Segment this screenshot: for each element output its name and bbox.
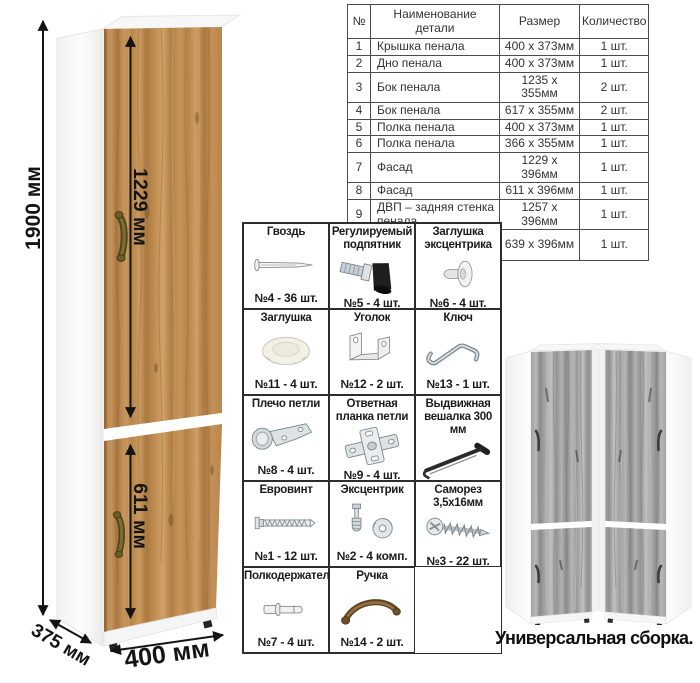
hardware-item-shelf-pin: Полкодержатель №7 - 4 шт.	[243, 567, 329, 653]
table-row: 7 Фасад 1229 х 396мм 1 шт.	[348, 153, 649, 183]
table-row: 4 Бок пенала 617 х 355мм 2 шт.	[348, 103, 649, 120]
hardware-item-cam-lock: Эксцентрик №2 - 4 комп.	[329, 481, 415, 567]
hardware-item-confirmat: Евровинт №1 - 12 шт.	[243, 481, 329, 567]
hardware-item-qty: №11 - 4 шт.	[255, 377, 318, 391]
table-row: 2 Дно пенала 400 х 373мм 1 шт.	[348, 56, 649, 73]
part-size: 611 х 396мм	[500, 183, 580, 200]
hardware-item-qty: №2 - 4 комп.	[337, 549, 408, 563]
hardware-item-cam-cover: Заглушка эксцентрика №6 - 4 шт.	[415, 223, 501, 309]
adjustable-foot-icon	[330, 252, 414, 296]
hardware-grid: Гвоздь №4 - 36 шт. Регулируемый подпятни…	[242, 222, 502, 654]
hardware-item-qty: №4 - 36 шт.	[254, 291, 317, 305]
hardware-item-name: Полкодержатель	[244, 570, 328, 583]
part-name: Полка пенала	[371, 119, 500, 136]
lower-door-dimension-label: 611 мм	[129, 483, 151, 549]
handle-icon	[330, 583, 414, 635]
hardware-item-corner-bracket: Уголок №12 - 2 шт.	[329, 309, 415, 395]
hardware-item-name: Уголок	[330, 312, 414, 325]
col-header-number: №	[348, 5, 371, 39]
part-qty: 1 шт.	[580, 230, 649, 260]
part-name: Дно пенала	[371, 56, 500, 73]
part-size: 400 х 373мм	[500, 119, 580, 136]
part-qty: 1 шт.	[580, 183, 649, 200]
part-number: 8	[348, 183, 371, 200]
part-size: 400 х 373мм	[500, 56, 580, 73]
part-name: Бок пенала	[371, 72, 500, 102]
variants-caption: Универсальная сборка.	[486, 628, 700, 649]
table-row: 8 Фасад 611 х 396мм 1 шт.	[348, 183, 649, 200]
part-number: 6	[348, 136, 371, 153]
hardware-item-name: Заглушка эксцентрика	[416, 226, 500, 252]
part-number: 3	[348, 72, 371, 102]
part-name: Крышка пенала	[371, 39, 500, 56]
part-name: Фасад	[371, 153, 500, 183]
nail-icon	[244, 239, 328, 291]
part-number: 4	[348, 103, 371, 120]
part-qty: 1 шт.	[580, 119, 649, 136]
hardware-item-nail: Гвоздь №4 - 36 шт.	[243, 223, 329, 309]
part-number: 7	[348, 153, 371, 183]
part-size: 1235 х 355мм	[500, 72, 580, 102]
hardware-item-handle: Ручка №14 - 2 шт.	[329, 567, 415, 653]
hardware-item-name: Ключ	[416, 312, 500, 325]
part-number: 2	[348, 56, 371, 73]
part-qty: 2 шт.	[580, 72, 649, 102]
assembly-instruction-sheet: 1900 мм 1229 мм 611 мм 375 мм 400 мм № Н…	[0, 0, 700, 683]
variant-cabinet	[506, 344, 601, 626]
cam-cover-icon	[416, 252, 500, 296]
part-name: Фасад	[371, 183, 500, 200]
hardware-item-name: Заглушка	[244, 312, 328, 325]
hardware-item-hinge-arm: Плечо петли №8 - 4 шт.	[243, 395, 329, 481]
hardware-item-name: Ручка	[330, 570, 414, 583]
hardware-item-name: Евровинт	[244, 484, 328, 497]
part-qty: 1 шт.	[580, 39, 649, 56]
part-qty: 1 шт.	[580, 153, 649, 183]
shelf-pin-icon	[244, 583, 328, 635]
hinge-plate-icon	[330, 424, 414, 468]
part-qty: 1 шт.	[580, 200, 649, 230]
cabinet-illustration: 1900 мм 1229 мм 611 мм 375 мм 400 мм	[0, 0, 260, 683]
hardware-item-cap: Заглушка №11 - 4 шт.	[243, 309, 329, 395]
part-size: 1229 х 396мм	[500, 153, 580, 183]
part-size: 639 х 396мм	[500, 230, 580, 260]
hardware-item-name: Ответная планка петли	[330, 398, 414, 424]
col-header-name: Наименование детали	[371, 5, 500, 39]
table-row: 1 Крышка пенала 400 х 373мм 1 шт.	[348, 39, 649, 56]
hardware-item-qty: №13 - 1 шт.	[426, 377, 489, 391]
col-header-qty: Количество	[580, 5, 649, 39]
hardware-item-qty: №14 - 2 шт.	[340, 635, 403, 649]
variant-cabinet-mirrored	[596, 344, 691, 626]
hardware-item-qty: №12 - 2 шт.	[340, 377, 403, 391]
height-dimension-label: 1900 мм	[22, 166, 45, 250]
hardware-item-qty: №8 - 4 шт.	[258, 463, 315, 477]
hinge-arm-icon	[244, 411, 328, 463]
part-qty: 2 шт.	[580, 103, 649, 120]
part-qty: 1 шт.	[580, 136, 649, 153]
table-row: 6 Полка пенала 366 х 355мм 1 шт.	[348, 136, 649, 153]
corner-bracket-icon	[330, 325, 414, 377]
part-name: Полка пенала	[371, 136, 500, 153]
hardware-item-name: Эксцентрик	[330, 484, 414, 497]
part-size: 400 х 373мм	[500, 39, 580, 56]
part-qty: 1 шт.	[580, 56, 649, 73]
cap-icon	[244, 325, 328, 377]
col-header-size: Размер	[500, 5, 580, 39]
confirmat-screw-icon	[244, 497, 328, 549]
hardware-item-adjustable-foot: Регулируемый подпятник №5 - 4 шт.	[329, 223, 415, 309]
part-size: 617 х 355мм	[500, 103, 580, 120]
cabinet-top-panel	[103, 15, 240, 29]
hardware-item-qty: №7 - 4 шт.	[258, 635, 315, 649]
width-dimension-label: 400 мм	[123, 634, 212, 674]
hardware-item-hinge-plate: Ответная планка петли №9 - 4 шт.	[329, 395, 415, 481]
cam-lock-icon	[330, 497, 414, 549]
table-header-row: № Наименование детали Размер Количество	[348, 5, 649, 39]
hardware-item-name: Плечо петли	[244, 398, 328, 411]
cabinet-side-panel	[57, 29, 103, 646]
part-size: 366 х 355мм	[500, 136, 580, 153]
part-number: 1	[348, 39, 371, 56]
assembly-variants-illustration	[486, 333, 700, 625]
hardware-item-qty: №1 - 12 шт.	[254, 549, 317, 563]
upper-door-dimension-label: 1229 мм	[129, 168, 151, 246]
table-row: 5 Полка пенала 400 х 373мм 1 шт.	[348, 119, 649, 136]
hardware-item-name: Регулируемый подпятник	[330, 226, 414, 252]
part-name: Бок пенала	[371, 103, 500, 120]
part-number: 5	[348, 119, 371, 136]
table-row: 3 Бок пенала 1235 х 355мм 2 шт.	[348, 72, 649, 102]
part-size: 1257 х 396мм	[500, 200, 580, 230]
hardware-item-name: Гвоздь	[244, 226, 328, 239]
